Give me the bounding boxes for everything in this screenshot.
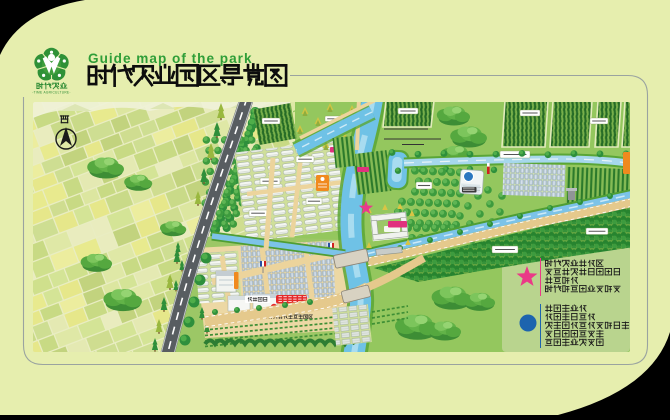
svg-text:Guide map of the park: Guide map of the park [88,51,253,66]
svg-text:-TIME AGRICULTURE-: -TIME AGRICULTURE- [32,91,70,95]
